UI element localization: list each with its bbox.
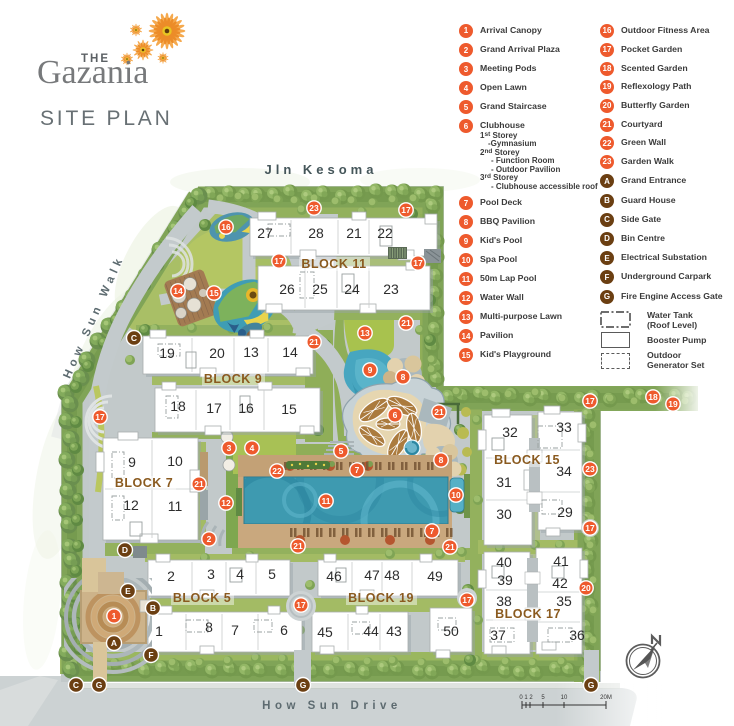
- svg-text:37: 37: [490, 627, 506, 643]
- svg-text:22: 22: [272, 466, 282, 476]
- svg-text:12: 12: [221, 498, 231, 508]
- svg-text:40: 40: [496, 554, 512, 570]
- svg-text:E: E: [125, 586, 131, 596]
- svg-text:BLOCK 19: BLOCK 19: [348, 591, 414, 605]
- svg-text:17: 17: [401, 205, 411, 215]
- svg-text:2: 2: [207, 534, 212, 544]
- svg-text:16: 16: [221, 222, 231, 232]
- svg-text:21: 21: [445, 542, 455, 552]
- svg-text:8: 8: [401, 372, 406, 382]
- svg-text:BLOCK 5: BLOCK 5: [173, 591, 231, 605]
- svg-text:8: 8: [205, 619, 213, 635]
- svg-text:17: 17: [413, 258, 423, 268]
- svg-text:46: 46: [326, 568, 342, 584]
- svg-text:21: 21: [309, 337, 319, 347]
- svg-text:42: 42: [552, 575, 568, 591]
- svg-text:F: F: [148, 650, 153, 660]
- svg-text:7: 7: [231, 622, 239, 638]
- svg-text:17: 17: [462, 595, 472, 605]
- svg-text:3: 3: [207, 566, 215, 582]
- svg-text:D: D: [122, 545, 128, 555]
- svg-text:C: C: [73, 680, 79, 690]
- svg-text:19: 19: [668, 399, 678, 409]
- svg-text:B: B: [150, 603, 156, 613]
- svg-text:21: 21: [434, 407, 444, 417]
- svg-text:29: 29: [557, 504, 573, 520]
- svg-text:28: 28: [308, 225, 324, 241]
- svg-text:17: 17: [206, 400, 222, 416]
- svg-text:1: 1: [112, 611, 117, 621]
- svg-text:BLOCK 11: BLOCK 11: [301, 257, 366, 271]
- svg-text:G: G: [96, 680, 103, 690]
- svg-text:8: 8: [439, 455, 444, 465]
- svg-text:Jln Kesoma: Jln Kesoma: [265, 162, 378, 177]
- svg-text:43: 43: [386, 623, 402, 639]
- svg-text:5: 5: [339, 446, 344, 456]
- svg-text:14: 14: [173, 286, 183, 296]
- svg-text:15: 15: [281, 401, 297, 417]
- svg-text:BLOCK 17: BLOCK 17: [495, 607, 561, 621]
- svg-text:6: 6: [280, 622, 288, 638]
- svg-text:9: 9: [128, 454, 136, 470]
- svg-text:10: 10: [167, 453, 183, 469]
- svg-text:41: 41: [553, 553, 569, 569]
- svg-text:A: A: [111, 638, 117, 648]
- svg-text:27: 27: [257, 225, 273, 241]
- svg-text:23: 23: [585, 464, 595, 474]
- svg-text:19: 19: [159, 345, 175, 361]
- svg-text:17: 17: [296, 600, 306, 610]
- svg-text:23: 23: [383, 281, 399, 297]
- svg-text:45: 45: [317, 624, 333, 640]
- svg-text:33: 33: [556, 419, 572, 435]
- svg-text:11: 11: [322, 496, 331, 506]
- svg-text:25: 25: [312, 281, 328, 297]
- svg-text:20: 20: [581, 583, 591, 593]
- svg-text:9: 9: [368, 365, 373, 375]
- svg-text:10: 10: [561, 695, 568, 701]
- svg-text:G: G: [300, 680, 307, 690]
- svg-text:47: 47: [364, 567, 380, 583]
- svg-text:20M: 20M: [600, 695, 612, 701]
- svg-text:36: 36: [569, 627, 585, 643]
- svg-text:21: 21: [346, 225, 362, 241]
- svg-text:BLOCK 9: BLOCK 9: [204, 372, 262, 386]
- svg-text:4: 4: [236, 566, 244, 582]
- svg-text:2: 2: [167, 568, 175, 584]
- svg-text:17: 17: [585, 523, 595, 533]
- svg-text:31: 31: [496, 474, 512, 490]
- svg-text:C: C: [131, 333, 137, 343]
- svg-text:7: 7: [355, 465, 360, 475]
- svg-text:14: 14: [282, 344, 298, 360]
- svg-text:21: 21: [293, 541, 303, 551]
- svg-text:18: 18: [648, 392, 658, 402]
- svg-text:48: 48: [384, 567, 400, 583]
- svg-text:17: 17: [585, 396, 595, 406]
- svg-text:How Sun Drive: How Sun Drive: [262, 700, 402, 712]
- svg-text:22: 22: [377, 225, 393, 241]
- svg-text:6: 6: [393, 410, 398, 420]
- svg-text:10: 10: [451, 490, 461, 500]
- svg-text:18: 18: [170, 398, 186, 414]
- svg-text:5: 5: [268, 566, 276, 582]
- svg-text:50: 50: [443, 623, 459, 639]
- svg-text:BLOCK 7: BLOCK 7: [115, 476, 173, 490]
- svg-text:30: 30: [496, 506, 512, 522]
- svg-text:24: 24: [344, 281, 360, 297]
- svg-text:15: 15: [209, 288, 219, 298]
- svg-text:44: 44: [363, 623, 379, 639]
- svg-text:17: 17: [274, 256, 284, 266]
- svg-text:13: 13: [243, 344, 259, 360]
- svg-text:BLOCK 15: BLOCK 15: [494, 453, 560, 467]
- svg-text:26: 26: [279, 281, 295, 297]
- svg-text:0 1 2: 0 1 2: [519, 695, 533, 701]
- svg-text:11: 11: [168, 498, 183, 514]
- svg-text:23: 23: [309, 203, 319, 213]
- svg-text:21: 21: [401, 318, 411, 328]
- svg-text:4: 4: [250, 443, 255, 453]
- svg-text:17: 17: [95, 412, 105, 422]
- svg-text:39: 39: [497, 572, 513, 588]
- svg-text:12: 12: [123, 497, 139, 513]
- svg-text:13: 13: [360, 328, 370, 338]
- svg-text:21: 21: [194, 479, 204, 489]
- svg-text:3: 3: [227, 443, 232, 453]
- svg-text:G: G: [588, 680, 595, 690]
- svg-text:20: 20: [209, 345, 225, 361]
- svg-text:16: 16: [238, 400, 254, 416]
- svg-text:32: 32: [502, 424, 518, 440]
- svg-text:7: 7: [430, 526, 435, 536]
- svg-text:1: 1: [155, 623, 163, 639]
- svg-text:49: 49: [427, 568, 443, 584]
